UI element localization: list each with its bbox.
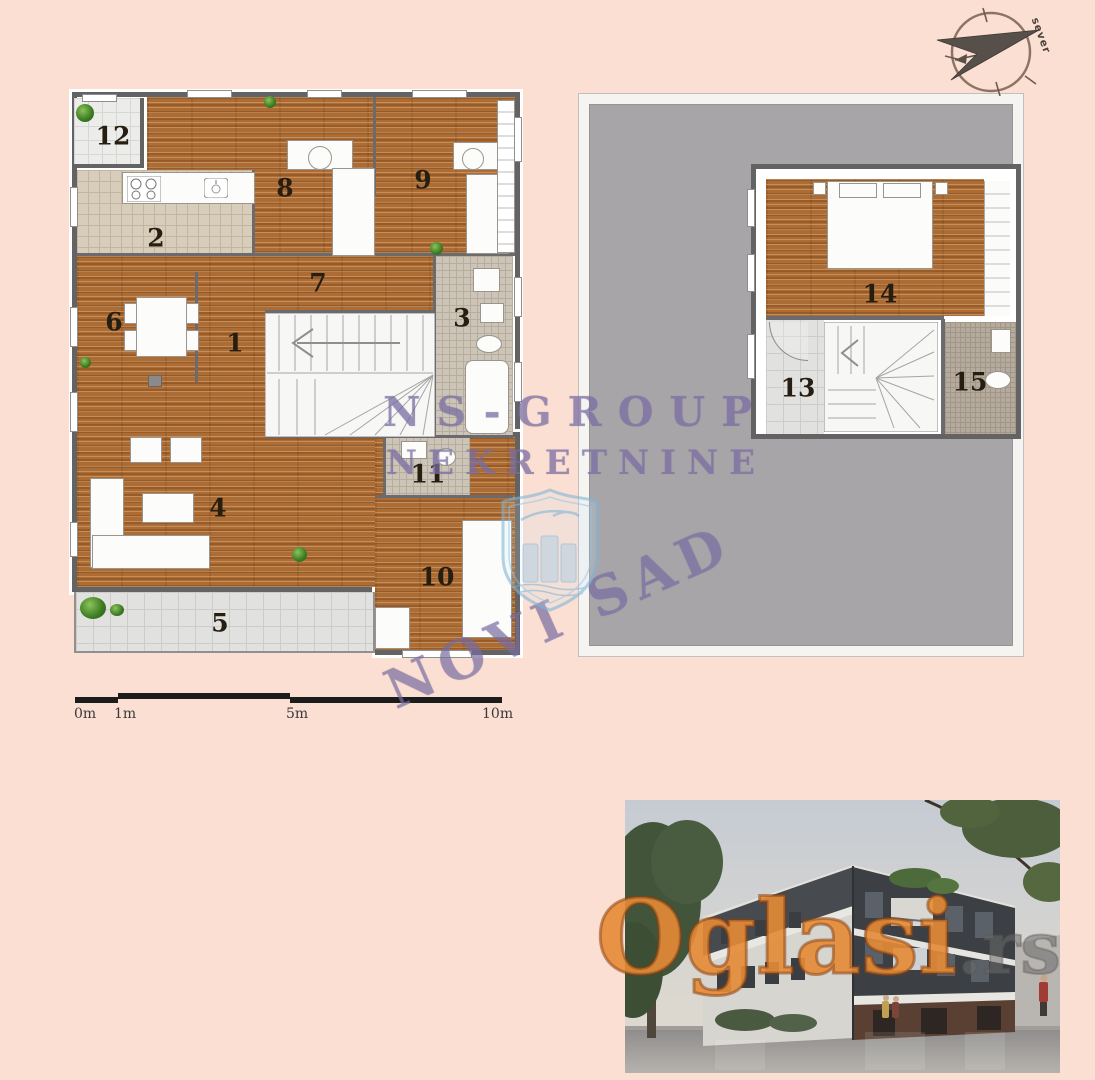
plant-icon: [430, 242, 443, 255]
room-number-9: 9: [414, 166, 431, 195]
window: [82, 94, 117, 102]
desk-chair: [308, 146, 332, 170]
chair: [186, 303, 199, 324]
building-render: [625, 800, 1060, 1073]
plant-icon: [264, 96, 276, 108]
plant-icon: [110, 604, 124, 616]
scale-label-1m: 1m: [114, 706, 136, 722]
pillow: [883, 183, 921, 198]
stove-icon: [127, 176, 161, 202]
building-photo: [625, 800, 1060, 1073]
sink-icon: [991, 329, 1011, 353]
window: [70, 307, 78, 347]
scale-label-5m: 5m: [286, 706, 308, 722]
room-number-11: 11: [411, 460, 446, 489]
bathroom-cabinet: [473, 268, 500, 292]
sink-icon: [480, 303, 504, 323]
wall: [375, 495, 513, 498]
chair: [186, 330, 199, 351]
sofa: [92, 535, 210, 569]
bathtub-icon: [465, 360, 509, 434]
plant-icon: [292, 547, 307, 562]
window: [514, 117, 522, 162]
scale-label-0m: 0m: [74, 706, 96, 722]
dining-table: [136, 297, 187, 357]
coffee-table: [142, 493, 194, 523]
scale-segment: [75, 697, 118, 703]
sink-icon: [204, 178, 228, 198]
bed: [462, 520, 512, 638]
tv-stand: [148, 375, 162, 387]
scale-label-10m: 10m: [482, 706, 513, 722]
scale-bar: 0m 1m 5m 10m: [72, 688, 514, 726]
desk-chair: [462, 148, 484, 170]
room-number-10: 10: [420, 563, 455, 592]
bed: [332, 168, 375, 256]
ground-floor-plan: 1 2 3 4 5 6 7 8 9 10 11 12: [72, 92, 522, 660]
armchair: [170, 437, 202, 463]
room-number-6: 6: [105, 308, 122, 337]
room-number-3: 3: [453, 304, 470, 333]
wardrobe: [984, 181, 1010, 316]
staircase: [824, 322, 938, 432]
armchair: [130, 437, 162, 463]
window: [747, 334, 755, 379]
room-number-15: 15: [953, 368, 988, 397]
wardrobe: [497, 100, 515, 253]
room-number-4: 4: [209, 494, 226, 523]
toilet-icon: [985, 371, 1011, 389]
window: [747, 254, 755, 292]
nightstand: [813, 182, 826, 195]
room-number-1: 1: [226, 329, 243, 358]
window: [412, 90, 467, 98]
sink-icon: [401, 441, 427, 459]
toilet-icon: [476, 335, 502, 353]
room-number-13: 13: [781, 374, 816, 403]
window: [70, 522, 78, 557]
wall: [941, 319, 945, 434]
chair: [124, 330, 137, 351]
chair: [124, 303, 137, 324]
room-number-7: 7: [309, 269, 326, 298]
scale-segment: [118, 693, 290, 699]
staircase: [265, 313, 435, 437]
scale-segment: [290, 697, 502, 703]
window: [307, 90, 342, 98]
room-number-14: 14: [863, 280, 898, 309]
plant-icon: [80, 597, 106, 619]
window: [187, 90, 232, 98]
plant-icon: [76, 104, 94, 122]
room-number-5: 5: [211, 609, 228, 638]
room-number-2: 2: [147, 224, 164, 253]
window: [514, 362, 522, 402]
window: [402, 650, 472, 658]
room-number-8: 8: [276, 174, 293, 203]
window: [514, 277, 522, 317]
nightstand: [935, 182, 948, 195]
pillow: [839, 183, 877, 198]
window: [70, 187, 78, 227]
listing-image: 1 2 3 4 5 6 7 8 9 10 11 12: [0, 0, 1095, 1080]
window: [747, 189, 755, 227]
plant-icon: [80, 357, 91, 368]
room-number-12: 12: [96, 122, 131, 151]
wall: [383, 437, 386, 497]
wall: [77, 253, 515, 256]
wall: [766, 316, 944, 320]
wall-partition: [195, 272, 198, 382]
window: [70, 392, 78, 432]
wardrobe: [375, 607, 410, 649]
upper-floor-plan: 13 14 15: [578, 93, 1024, 657]
